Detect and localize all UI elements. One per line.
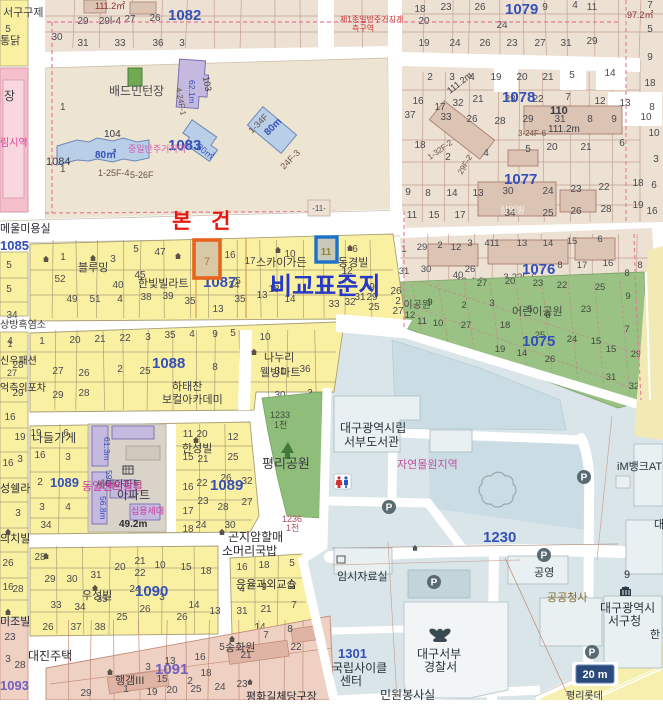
svg-text:19: 19 (490, 72, 502, 83)
svg-text:33: 33 (114, 38, 126, 49)
svg-text:은율과외교습: 은율과외교습 (236, 578, 297, 591)
svg-text:21: 21 (472, 94, 484, 105)
svg-text:37: 37 (404, 110, 416, 121)
svg-text:26: 26 (42, 622, 54, 633)
svg-text:18: 18 (200, 566, 212, 577)
svg-text:10: 10 (259, 332, 271, 343)
svg-text:7: 7 (565, 92, 571, 103)
svg-text:29: 29 (586, 36, 598, 47)
svg-text:9: 9 (405, 187, 411, 198)
svg-text:10: 10 (154, 560, 166, 571)
svg-text:12: 12 (594, 96, 606, 107)
svg-text:22: 22 (290, 642, 302, 653)
svg-text:23: 23 (4, 632, 16, 643)
svg-text:임시자료실: 임시자료실 (337, 570, 388, 583)
svg-text:상방흑염소: 상방흑염소 (0, 318, 46, 331)
svg-text:19: 19 (495, 344, 506, 355)
svg-text:33: 33 (328, 299, 340, 310)
svg-text:행갬III: 행갬III (115, 674, 144, 687)
svg-text:중일반주거지역: 중일반주거지역 (128, 144, 186, 154)
svg-text:27: 27 (241, 497, 253, 508)
svg-text:삼익빌: 삼익빌 (500, 204, 525, 215)
svg-text:14: 14 (188, 600, 200, 611)
svg-text:민원봉사실: 민원봉사실 (380, 688, 435, 700)
svg-text:소머리국밥: 소머리국밥 (222, 544, 277, 558)
svg-text:자연몰원지역: 자연몰원지역 (397, 458, 458, 471)
svg-text:62.1m: 62.1m (187, 80, 197, 104)
svg-text:3: 3 (15, 508, 21, 519)
svg-text:25: 25 (227, 452, 239, 463)
svg-text:29: 29 (80, 688, 92, 699)
svg-text:30: 30 (51, 32, 63, 43)
svg-text:12: 12 (227, 432, 239, 443)
svg-text:5: 5 (569, 70, 575, 81)
svg-text:P: P (581, 473, 588, 484)
svg-text:2: 2 (437, 240, 442, 251)
svg-text:24: 24 (567, 334, 578, 345)
svg-text:80㎡: 80㎡ (95, 148, 116, 161)
svg-text:iM뱅크AT: iM뱅크AT (617, 460, 662, 473)
svg-text:26: 26 (479, 38, 491, 49)
svg-text:송화원: 송화원 (225, 641, 255, 654)
svg-text:4: 4 (65, 502, 71, 513)
svg-text:1093: 1093 (0, 678, 29, 693)
svg-text:30: 30 (421, 264, 432, 275)
svg-text:서구청: 서구청 (608, 614, 641, 628)
svg-text:33: 33 (440, 112, 452, 123)
svg-text:평화길체당구장: 평화길체당구장 (246, 690, 317, 700)
svg-text:6: 6 (651, 180, 657, 191)
svg-text:측구역: 측구역 (352, 23, 374, 33)
svg-text:1084: 1084 (46, 156, 70, 168)
svg-text:16: 16 (603, 258, 614, 269)
svg-text:제1종일반주거지계: 제1종일반주거지계 (340, 14, 403, 24)
svg-text:26: 26 (545, 354, 556, 365)
svg-text:20: 20 (516, 72, 528, 83)
svg-text:25: 25 (542, 208, 554, 219)
svg-text:P: P (386, 503, 393, 514)
svg-text:29: 29 (522, 114, 534, 125)
svg-text:대: 대 (654, 518, 663, 531)
svg-text:2: 2 (427, 72, 433, 83)
svg-text:9: 9 (542, 2, 548, 13)
svg-text:3: 3 (179, 38, 185, 49)
svg-text:1079: 1079 (505, 1, 538, 18)
svg-text:3: 3 (145, 332, 151, 343)
svg-text:22: 22 (598, 182, 610, 193)
svg-text:1077: 1077 (504, 171, 537, 188)
svg-text:28: 28 (217, 502, 229, 513)
svg-text:31: 31 (77, 38, 89, 49)
svg-text:공영: 공영 (534, 566, 554, 579)
svg-text:29: 29 (631, 349, 642, 360)
svg-text:5: 5 (289, 558, 295, 569)
svg-text:3: 3 (145, 662, 151, 673)
svg-text:8: 8 (587, 114, 593, 125)
svg-text:15: 15 (567, 236, 578, 247)
svg-text:장: 장 (4, 89, 15, 103)
svg-text:14: 14 (543, 238, 554, 249)
svg-text:13: 13 (209, 606, 221, 617)
svg-text:13: 13 (256, 290, 268, 301)
svg-text:의치빌: 의치빌 (0, 532, 30, 545)
svg-text:111.2㎡: 111.2㎡ (95, 1, 125, 11)
svg-text:21: 21 (134, 556, 146, 567)
svg-text:56.8m: 56.8m (98, 496, 108, 520)
svg-text:대구서부: 대구서부 (417, 647, 461, 661)
svg-text:28: 28 (600, 204, 612, 215)
svg-text:29: 29 (44, 574, 56, 585)
svg-text:36: 36 (299, 364, 311, 375)
svg-text:나누리: 나누리 (264, 351, 294, 364)
svg-text:성쉘라: 성쉘라 (0, 482, 30, 495)
svg-text:메울미용실: 메울미용실 (0, 222, 51, 235)
svg-text:34: 34 (40, 520, 52, 531)
svg-text:통닭: 통닭 (0, 34, 20, 47)
svg-text:16: 16 (224, 250, 236, 261)
svg-text:27: 27 (124, 14, 136, 25)
svg-text:1085: 1085 (0, 238, 29, 253)
svg-text:97.2㎡: 97.2㎡ (627, 10, 654, 20)
svg-text:17: 17 (182, 506, 194, 517)
svg-text:3-24F-6: 3-24F-6 (518, 129, 547, 138)
svg-text:10: 10 (648, 128, 660, 139)
svg-text:12: 12 (451, 242, 462, 253)
svg-text:16: 16 (236, 562, 248, 573)
svg-text:20: 20 (546, 142, 558, 153)
svg-text:16: 16 (2, 582, 14, 593)
svg-text:1089: 1089 (210, 477, 243, 494)
svg-text:14: 14 (446, 188, 458, 199)
svg-text:11: 11 (587, 2, 598, 13)
svg-text:22: 22 (119, 333, 131, 344)
svg-text:26: 26 (176, 612, 188, 623)
svg-text:38: 38 (140, 292, 152, 303)
svg-text:21: 21 (94, 334, 106, 345)
svg-text:어린이공원: 어린이공원 (512, 305, 563, 318)
svg-text:5-26F: 5-26F (130, 170, 154, 180)
svg-text:23: 23 (533, 278, 544, 289)
svg-text:33: 33 (50, 600, 62, 611)
svg-text:61.3m: 61.3m (102, 437, 112, 461)
svg-text:3: 3 (653, 154, 659, 165)
svg-text:5: 5 (133, 244, 139, 255)
svg-text:9: 9 (212, 329, 218, 340)
svg-text:1230: 1230 (483, 529, 516, 546)
svg-text:8: 8 (425, 188, 431, 199)
svg-text:24: 24 (542, 186, 554, 197)
svg-text:25: 25 (368, 302, 380, 313)
svg-text:11: 11 (417, 316, 427, 327)
svg-text:18: 18 (500, 320, 511, 331)
svg-text:31: 31 (606, 372, 617, 383)
svg-text:31: 31 (236, 606, 248, 617)
svg-text:6: 6 (597, 234, 602, 245)
svg-text:20: 20 (166, 685, 178, 696)
svg-text:3: 3 (489, 298, 494, 309)
svg-text:40: 40 (112, 280, 124, 291)
svg-text:동경빌: 동경빌 (338, 256, 368, 269)
svg-text:스카이가든: 스카이가든 (256, 256, 307, 269)
svg-text:47: 47 (154, 247, 166, 258)
svg-text:27: 27 (52, 366, 64, 377)
svg-text:17: 17 (454, 210, 466, 221)
svg-text:3: 3 (65, 452, 71, 463)
svg-text:18: 18 (644, 78, 656, 89)
svg-text:25: 25 (595, 282, 606, 293)
svg-text:림시역: 림시역 (0, 137, 28, 149)
svg-text:1088: 1088 (152, 355, 185, 372)
svg-text:18: 18 (414, 4, 426, 15)
svg-text:22: 22 (134, 568, 146, 579)
svg-text:20 m: 20 m (582, 669, 607, 681)
svg-text:30: 30 (66, 574, 78, 585)
svg-text:P: P (589, 648, 596, 659)
svg-text:평리공원: 평리공원 (262, 456, 310, 471)
svg-text:동일센트럴빌: 동일센트럴빌 (82, 479, 143, 493)
svg-text:3: 3 (467, 238, 472, 249)
svg-text:29: 29 (52, 390, 64, 401)
svg-text:49.2m: 49.2m (119, 519, 147, 530)
svg-text:18: 18 (632, 178, 644, 189)
svg-text:21: 21 (542, 72, 554, 83)
svg-text:26: 26 (139, 604, 151, 615)
svg-text:5: 5 (5, 24, 11, 35)
svg-text:2: 2 (461, 300, 466, 311)
svg-text:9: 9 (625, 291, 630, 302)
svg-text:28: 28 (14, 660, 26, 671)
svg-text:8: 8 (624, 268, 629, 279)
svg-text:9: 9 (624, 569, 630, 581)
svg-text:-11-: -11- (312, 204, 326, 213)
svg-text:한빛빌라트: 한빛빌라트 (138, 277, 189, 290)
svg-text:서부도서관: 서부도서관 (344, 435, 399, 449)
svg-text:20: 20 (69, 335, 81, 346)
svg-text:1: 1 (7, 339, 12, 349)
svg-text:20: 20 (196, 429, 208, 440)
svg-text:11: 11 (407, 210, 418, 221)
svg-text:웰빙마트: 웰빙마트 (260, 366, 300, 379)
svg-text:1075: 1075 (522, 333, 555, 350)
svg-text:1천: 1천 (286, 523, 299, 533)
svg-text:20: 20 (505, 276, 516, 287)
svg-text:16: 16 (4, 412, 16, 423)
svg-text:8: 8 (287, 624, 293, 635)
svg-text:15: 15 (428, 210, 440, 221)
svg-text:15: 15 (180, 562, 192, 573)
svg-text:23: 23 (581, 304, 592, 315)
svg-text:억측의포차: 억측의포차 (0, 382, 46, 394)
svg-text:32: 32 (452, 98, 464, 109)
svg-text:블루밍: 블루밍 (78, 261, 108, 274)
svg-text:10: 10 (640, 112, 652, 123)
svg-text:미조빌: 미조빌 (0, 615, 30, 628)
svg-text:7: 7 (204, 256, 210, 268)
svg-text:6: 6 (352, 244, 358, 255)
svg-text:배드민턴장: 배드민턴장 (109, 84, 164, 98)
svg-text:29: 29 (417, 242, 428, 253)
svg-text:공공청사: 공공청사 (547, 591, 587, 604)
svg-text:1: 1 (60, 252, 66, 263)
svg-text:37: 37 (70, 622, 82, 633)
svg-text:한: 한 (650, 628, 660, 641)
svg-text:3: 3 (17, 454, 23, 465)
svg-text:1-25F-4: 1-25F-4 (98, 168, 130, 178)
svg-text:36: 36 (152, 38, 164, 49)
svg-text:1090: 1090 (135, 583, 168, 600)
svg-text:본 건: 본 건 (172, 210, 237, 233)
svg-text:11: 11 (183, 429, 194, 440)
svg-text:7: 7 (624, 324, 629, 335)
svg-text:27: 27 (392, 306, 404, 317)
svg-text:6: 6 (619, 138, 625, 149)
svg-text:4: 4 (483, 148, 489, 159)
svg-text:21: 21 (197, 454, 209, 465)
svg-text:십용세대: 십용세대 (131, 506, 164, 516)
svg-text:8: 8 (557, 260, 562, 271)
svg-text:3: 3 (110, 254, 116, 265)
svg-text:24: 24 (449, 38, 461, 49)
svg-text:27: 27 (7, 368, 17, 378)
svg-text:24: 24 (214, 682, 226, 693)
svg-text:104: 104 (104, 129, 121, 140)
svg-text:26: 26 (474, 2, 486, 13)
svg-text:16: 16 (194, 652, 206, 663)
svg-text:1233: 1233 (270, 410, 290, 420)
svg-text:21: 21 (260, 604, 272, 615)
svg-text:1천: 1천 (274, 420, 287, 430)
svg-text:11: 11 (321, 247, 332, 258)
svg-text:27: 27 (461, 320, 472, 331)
svg-text:23: 23 (506, 38, 518, 49)
svg-text:7: 7 (291, 600, 297, 611)
svg-text:21: 21 (580, 142, 592, 153)
svg-text:2: 2 (37, 477, 43, 488)
svg-text:5: 5 (525, 144, 531, 155)
svg-text:하태찬: 하태찬 (172, 379, 202, 393)
svg-text:19: 19 (146, 687, 158, 698)
svg-text:111.2m: 111.2m (548, 124, 580, 135)
svg-text:16: 16 (34, 450, 46, 461)
svg-text:110: 110 (550, 105, 568, 117)
svg-text:센터: 센터 (340, 674, 362, 688)
svg-text:대구광역시립: 대구광역시립 (340, 421, 406, 435)
svg-text:한성빌: 한성빌 (182, 442, 212, 455)
svg-text:신우패션: 신우패션 (0, 355, 37, 367)
svg-text:1091: 1091 (155, 661, 188, 678)
svg-text:16: 16 (412, 96, 424, 107)
svg-text:26: 26 (2, 558, 14, 569)
svg-text:보컬아카데미: 보컬아카데미 (162, 393, 223, 406)
svg-text:25: 25 (190, 684, 202, 695)
svg-text:10: 10 (433, 318, 444, 329)
svg-text:39: 39 (162, 291, 174, 302)
svg-text:18: 18 (182, 524, 194, 535)
svg-text:20: 20 (114, 562, 126, 573)
svg-text:경찰서: 경찰서 (424, 660, 457, 674)
svg-text:23: 23 (236, 679, 248, 690)
svg-text:25: 25 (139, 366, 151, 377)
svg-text:38: 38 (94, 622, 106, 633)
svg-text:13: 13 (619, 98, 631, 109)
svg-text:27: 27 (534, 38, 546, 49)
svg-text:5: 5 (647, 24, 653, 35)
svg-text:13: 13 (472, 188, 484, 199)
svg-text:35: 35 (184, 296, 196, 307)
svg-text:18: 18 (414, 140, 426, 151)
svg-text:23: 23 (440, 2, 452, 13)
svg-text:서구구제: 서구구제 (3, 6, 43, 19)
svg-text:P: P (431, 578, 438, 589)
svg-text:13: 13 (517, 238, 528, 249)
svg-text:4: 4 (572, 0, 578, 11)
svg-text:비교표준지: 비교표준지 (270, 273, 380, 300)
svg-text:18: 18 (200, 668, 212, 679)
svg-text:26: 26 (465, 264, 476, 275)
svg-text:28: 28 (78, 388, 90, 399)
svg-text:411: 411 (484, 238, 499, 249)
svg-text:19: 19 (632, 200, 644, 211)
svg-text:5: 5 (230, 328, 236, 339)
svg-text:2: 2 (445, 152, 451, 163)
svg-text:23: 23 (197, 496, 209, 507)
svg-text:13: 13 (212, 304, 224, 315)
svg-text:24: 24 (195, 520, 207, 531)
svg-text:28: 28 (12, 584, 24, 595)
svg-text:28: 28 (494, 116, 506, 127)
svg-text:26: 26 (570, 206, 582, 217)
svg-text:16: 16 (646, 206, 658, 217)
svg-text:1301: 1301 (338, 646, 367, 661)
svg-text:3: 3 (5, 654, 11, 665)
svg-text:9: 9 (611, 114, 617, 125)
svg-text:17: 17 (577, 260, 588, 271)
svg-text:2: 2 (117, 364, 123, 375)
svg-text:17: 17 (244, 256, 256, 267)
svg-text:8: 8 (212, 362, 218, 373)
svg-text:4: 4 (117, 294, 123, 305)
svg-text:19: 19 (14, 432, 26, 443)
svg-text:3: 3 (39, 502, 45, 513)
svg-text:15: 15 (591, 336, 602, 347)
svg-text:15: 15 (606, 344, 617, 355)
svg-text:4: 4 (189, 329, 195, 340)
svg-text:대구광역시: 대구광역시 (600, 601, 655, 615)
svg-text:P: P (541, 551, 548, 562)
svg-text:8: 8 (649, 102, 655, 113)
svg-text:26: 26 (466, 114, 478, 125)
svg-text:국립사이클: 국립사이클 (332, 661, 387, 675)
svg-text:19: 19 (418, 38, 430, 49)
svg-text:25: 25 (116, 612, 128, 623)
svg-text:나들가게: 나들가게 (32, 431, 76, 445)
svg-text:31: 31 (90, 570, 102, 581)
svg-text:35: 35 (164, 330, 176, 341)
svg-text:18: 18 (258, 560, 270, 571)
svg-text:9: 9 (647, 52, 653, 63)
svg-text:8: 8 (637, 260, 642, 271)
svg-text:26: 26 (78, 368, 90, 379)
svg-text:22: 22 (196, 478, 208, 489)
svg-text:49: 49 (66, 294, 78, 305)
svg-text:5: 5 (6, 260, 12, 271)
svg-text:곤지암할매: 곤지암할매 (228, 530, 283, 544)
svg-text:34: 34 (74, 602, 86, 613)
svg-text:35: 35 (234, 294, 246, 305)
svg-text:1078: 1078 (502, 89, 535, 106)
svg-text:16: 16 (182, 482, 194, 493)
svg-text:1: 1 (39, 336, 45, 347)
